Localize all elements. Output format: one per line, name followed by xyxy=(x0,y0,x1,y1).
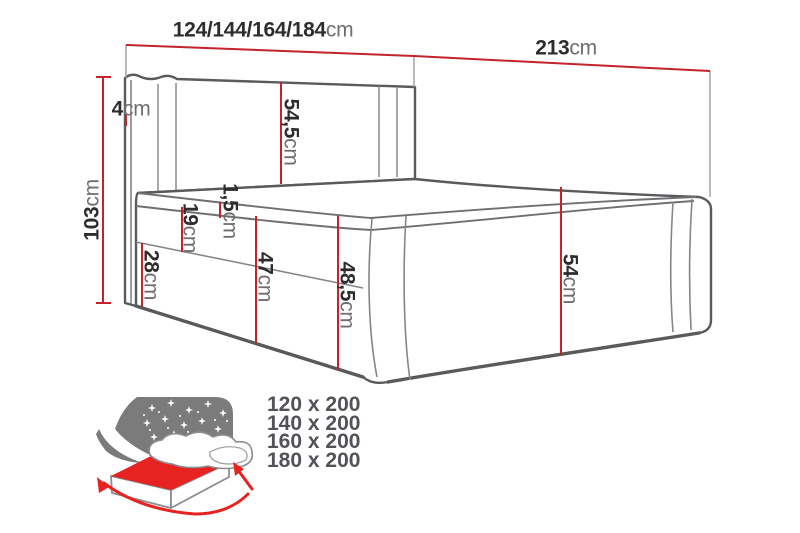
size-item: 180 x 200 xyxy=(267,452,360,471)
dim-headboard-label: 54,5cm xyxy=(281,98,302,165)
dim-base-label: 28cm xyxy=(141,250,162,300)
dim-piping-label: 1,5cm xyxy=(220,183,241,239)
dim-length-label: 213cm xyxy=(535,38,597,59)
bed-dimension-diagram: 124/144/164/184cm 213cm 103cm 4cm 54,5cm… xyxy=(0,0,800,533)
available-sizes-list: 120 x 200 140 x 200 160 x 200 180 x 200 xyxy=(267,396,360,470)
bed-technical-drawing xyxy=(0,0,800,533)
dim-mattress-label: 19cm xyxy=(180,203,201,253)
dim-width-label: 124/144/164/184cm xyxy=(173,20,354,41)
dim-footboard-label: 54cm xyxy=(560,254,581,304)
dim-height-label: 103cm xyxy=(82,179,103,241)
dim-foot-corner-label: 48,5cm xyxy=(337,261,358,328)
storage-bed-icon xyxy=(96,397,252,514)
pillow-shape xyxy=(210,447,247,464)
dim-side-wing-label: 4cm xyxy=(112,99,151,120)
dim-line-width-length xyxy=(126,45,710,71)
dim-side-total-label: 47cm xyxy=(255,252,276,302)
